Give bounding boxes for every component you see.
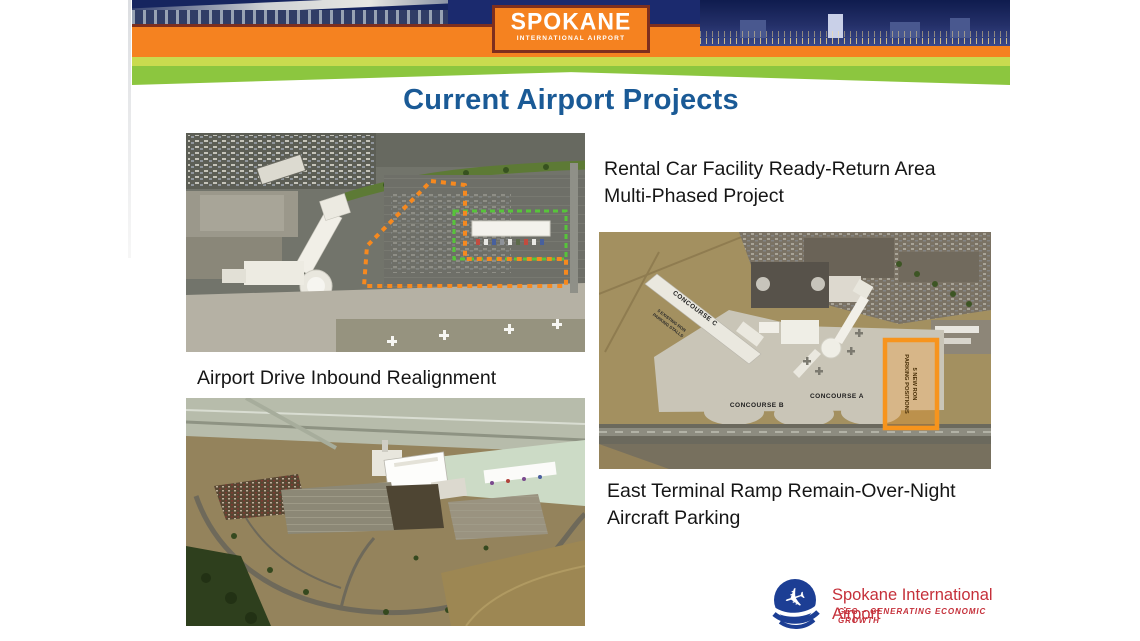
caption-rental-car-line1: Rental Car Facility Ready-Return Area [604,156,936,183]
airport-drive-aerial-photo [186,133,585,352]
new-ron-label-line2: PARKING POSITIONS [903,354,909,414]
east-terminal-ramp-aerial-photo: CONCOURSE C 5 EXISTING RON PARKING STALL… [599,232,991,469]
spokane-airport-banner-logo: SPOKANE INTERNATIONAL AIRPORT [492,5,650,53]
caption-airport-drive: Airport Drive Inbound Realignment [197,365,496,392]
banner-logo-title: SPOKANE [495,7,647,35]
concourse-a-label: CONCOURSE A [810,393,864,400]
footer-logo: ✈ Spokane International Airport GEG – GE… [766,576,1016,632]
header-banner: SPOKANE INTERNATIONAL AIRPORT [132,0,1010,84]
banner-green-chevron-stripe [132,66,1010,85]
caption-rental-car-line2: Multi-Phased Project [604,183,936,210]
runways [599,424,991,469]
airport-swoosh-icon: ✈ [766,576,826,632]
concourse-b-label: CONCOURSE B [730,402,784,409]
city-skyline-photo [700,0,1010,46]
taxiway [336,319,585,352]
new-ron-label-line1: 5 NEW RON [911,368,917,401]
city-lights [700,31,1010,37]
terminal-night-photo [132,0,448,26]
page-title: Current Airport Projects [132,84,1010,117]
caption-rental-car: Rental Car Facility Ready-Return Area Mu… [604,156,936,210]
access-road [570,163,578,293]
slide-edge-shadow [128,0,131,258]
slide: SPOKANE INTERNATIONAL AIRPORT Current Ai… [0,0,1140,641]
banner-logo-subtitle: INTERNATIONAL AIRPORT [495,35,647,43]
airport-campus-rendering [186,398,585,626]
caption-east-terminal-line1: East Terminal Ramp Remain-Over-Night [607,478,956,505]
rental-cars [476,239,544,245]
banner-light-green-stripe [132,57,1010,66]
footer-logo-tagline: GEG – GENERATING ECONOMIC GROWTH [838,607,1016,625]
caption-east-terminal: East Terminal Ramp Remain-Over-Night Air… [607,478,956,532]
city-lights [700,38,1010,44]
new-ron-highlight-box: 5 NEW RON PARKING POSITIONS [885,340,937,428]
caption-east-terminal-line2: Aircraft Parking [607,505,956,532]
